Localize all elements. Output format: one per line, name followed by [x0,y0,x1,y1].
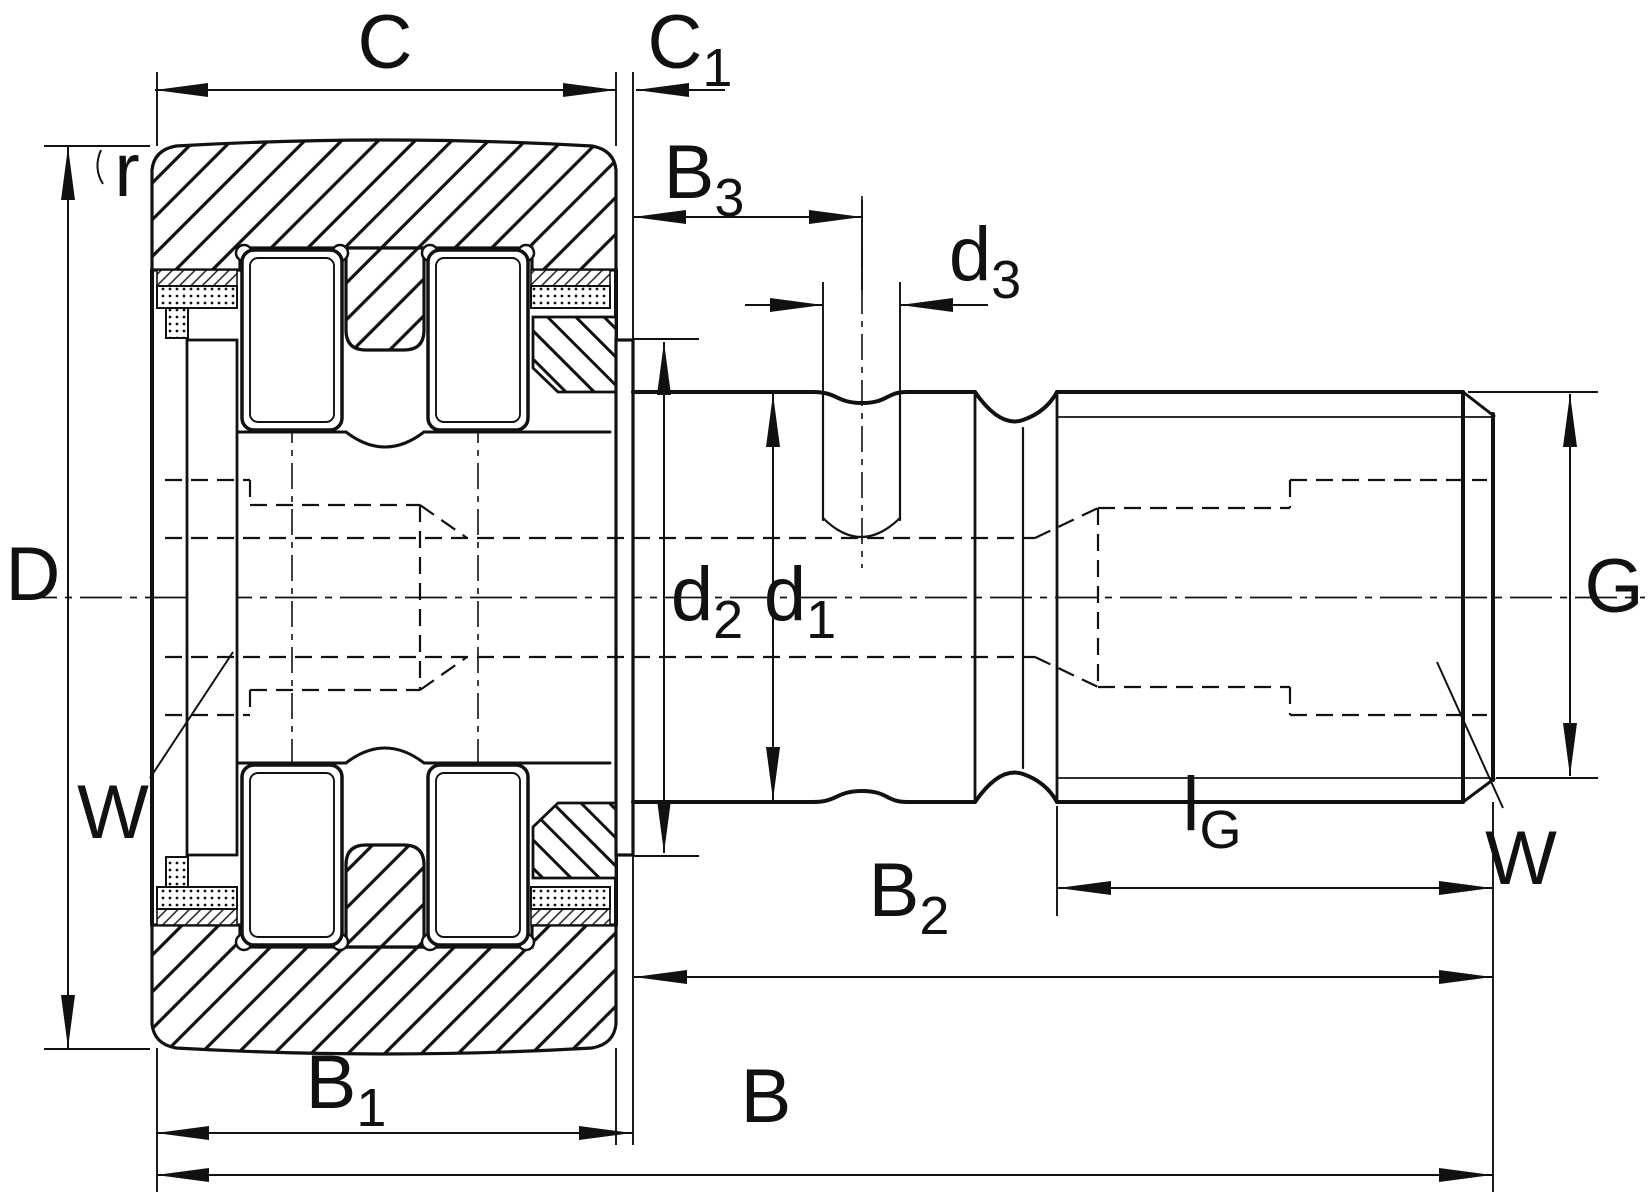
stud-shaft [633,282,1494,802]
stud-flange-top [533,317,616,392]
seal-metal-insert [531,909,610,925]
dim-label-B2: B2 [869,848,950,946]
right-socket-chamfer [1035,657,1098,687]
dim-label-C1: C1 [648,0,733,98]
shaft-top-edge [633,392,975,403]
dim-label-r: r [114,128,139,213]
dim-label-G: G [1584,544,1643,629]
dim-label-W-left: W [77,770,149,855]
seal-rubber [531,887,610,909]
relief-groove-bottom [975,773,1057,802]
dim-label-B3: B3 [664,130,745,228]
dim-label-C: C [358,0,413,85]
seal-rubber [157,887,237,909]
left-socket-chamfer [420,657,467,690]
left-socket-chamfer [420,505,467,538]
seal-rubber [157,286,237,308]
left-end-washer [187,340,237,855]
end-chamfer-top [1463,392,1494,416]
needle-roller [242,250,342,430]
shaft-bottom-edge [633,791,975,802]
needle-roller [428,765,528,945]
head-raceway-bottom [237,748,610,763]
technical-drawing: C C1 B3 d3 D r W d2 d1 G lG W B2 B1 B [0,0,1650,1200]
dim-label-D: D [6,532,61,617]
stud-flange-bottom [533,803,616,878]
dim-label-d1: d1 [764,552,836,650]
needle-roller [242,765,342,945]
end-chamfer-bottom [1463,779,1494,802]
drawing-canvas: C C1 B3 d3 D r W d2 d1 G lG W B2 B1 B [0,0,1650,1200]
seal-lip [166,308,188,338]
dim-label-B: B [741,1054,792,1139]
ring-center-rib-top [346,248,424,350]
r-radius-tick [97,150,103,184]
seal-lip [166,857,188,887]
head-raceway-top [237,432,610,447]
seal-metal-insert [531,270,610,286]
dim-label-lG: lG [1183,762,1242,860]
seal-metal-insert [157,909,237,925]
right-socket-chamfer [1035,508,1098,538]
seal-rubber [531,286,610,308]
end-plate-collar [616,340,633,855]
seal-metal-insert [157,270,237,286]
dim-label-W-right: W [1485,816,1557,901]
needle-roller [428,250,528,430]
dim-label-d2: d2 [671,552,743,650]
dim-label-d3: d3 [949,212,1021,310]
relief-groove-top [975,392,1057,421]
ring-center-rib-bottom [346,845,424,947]
